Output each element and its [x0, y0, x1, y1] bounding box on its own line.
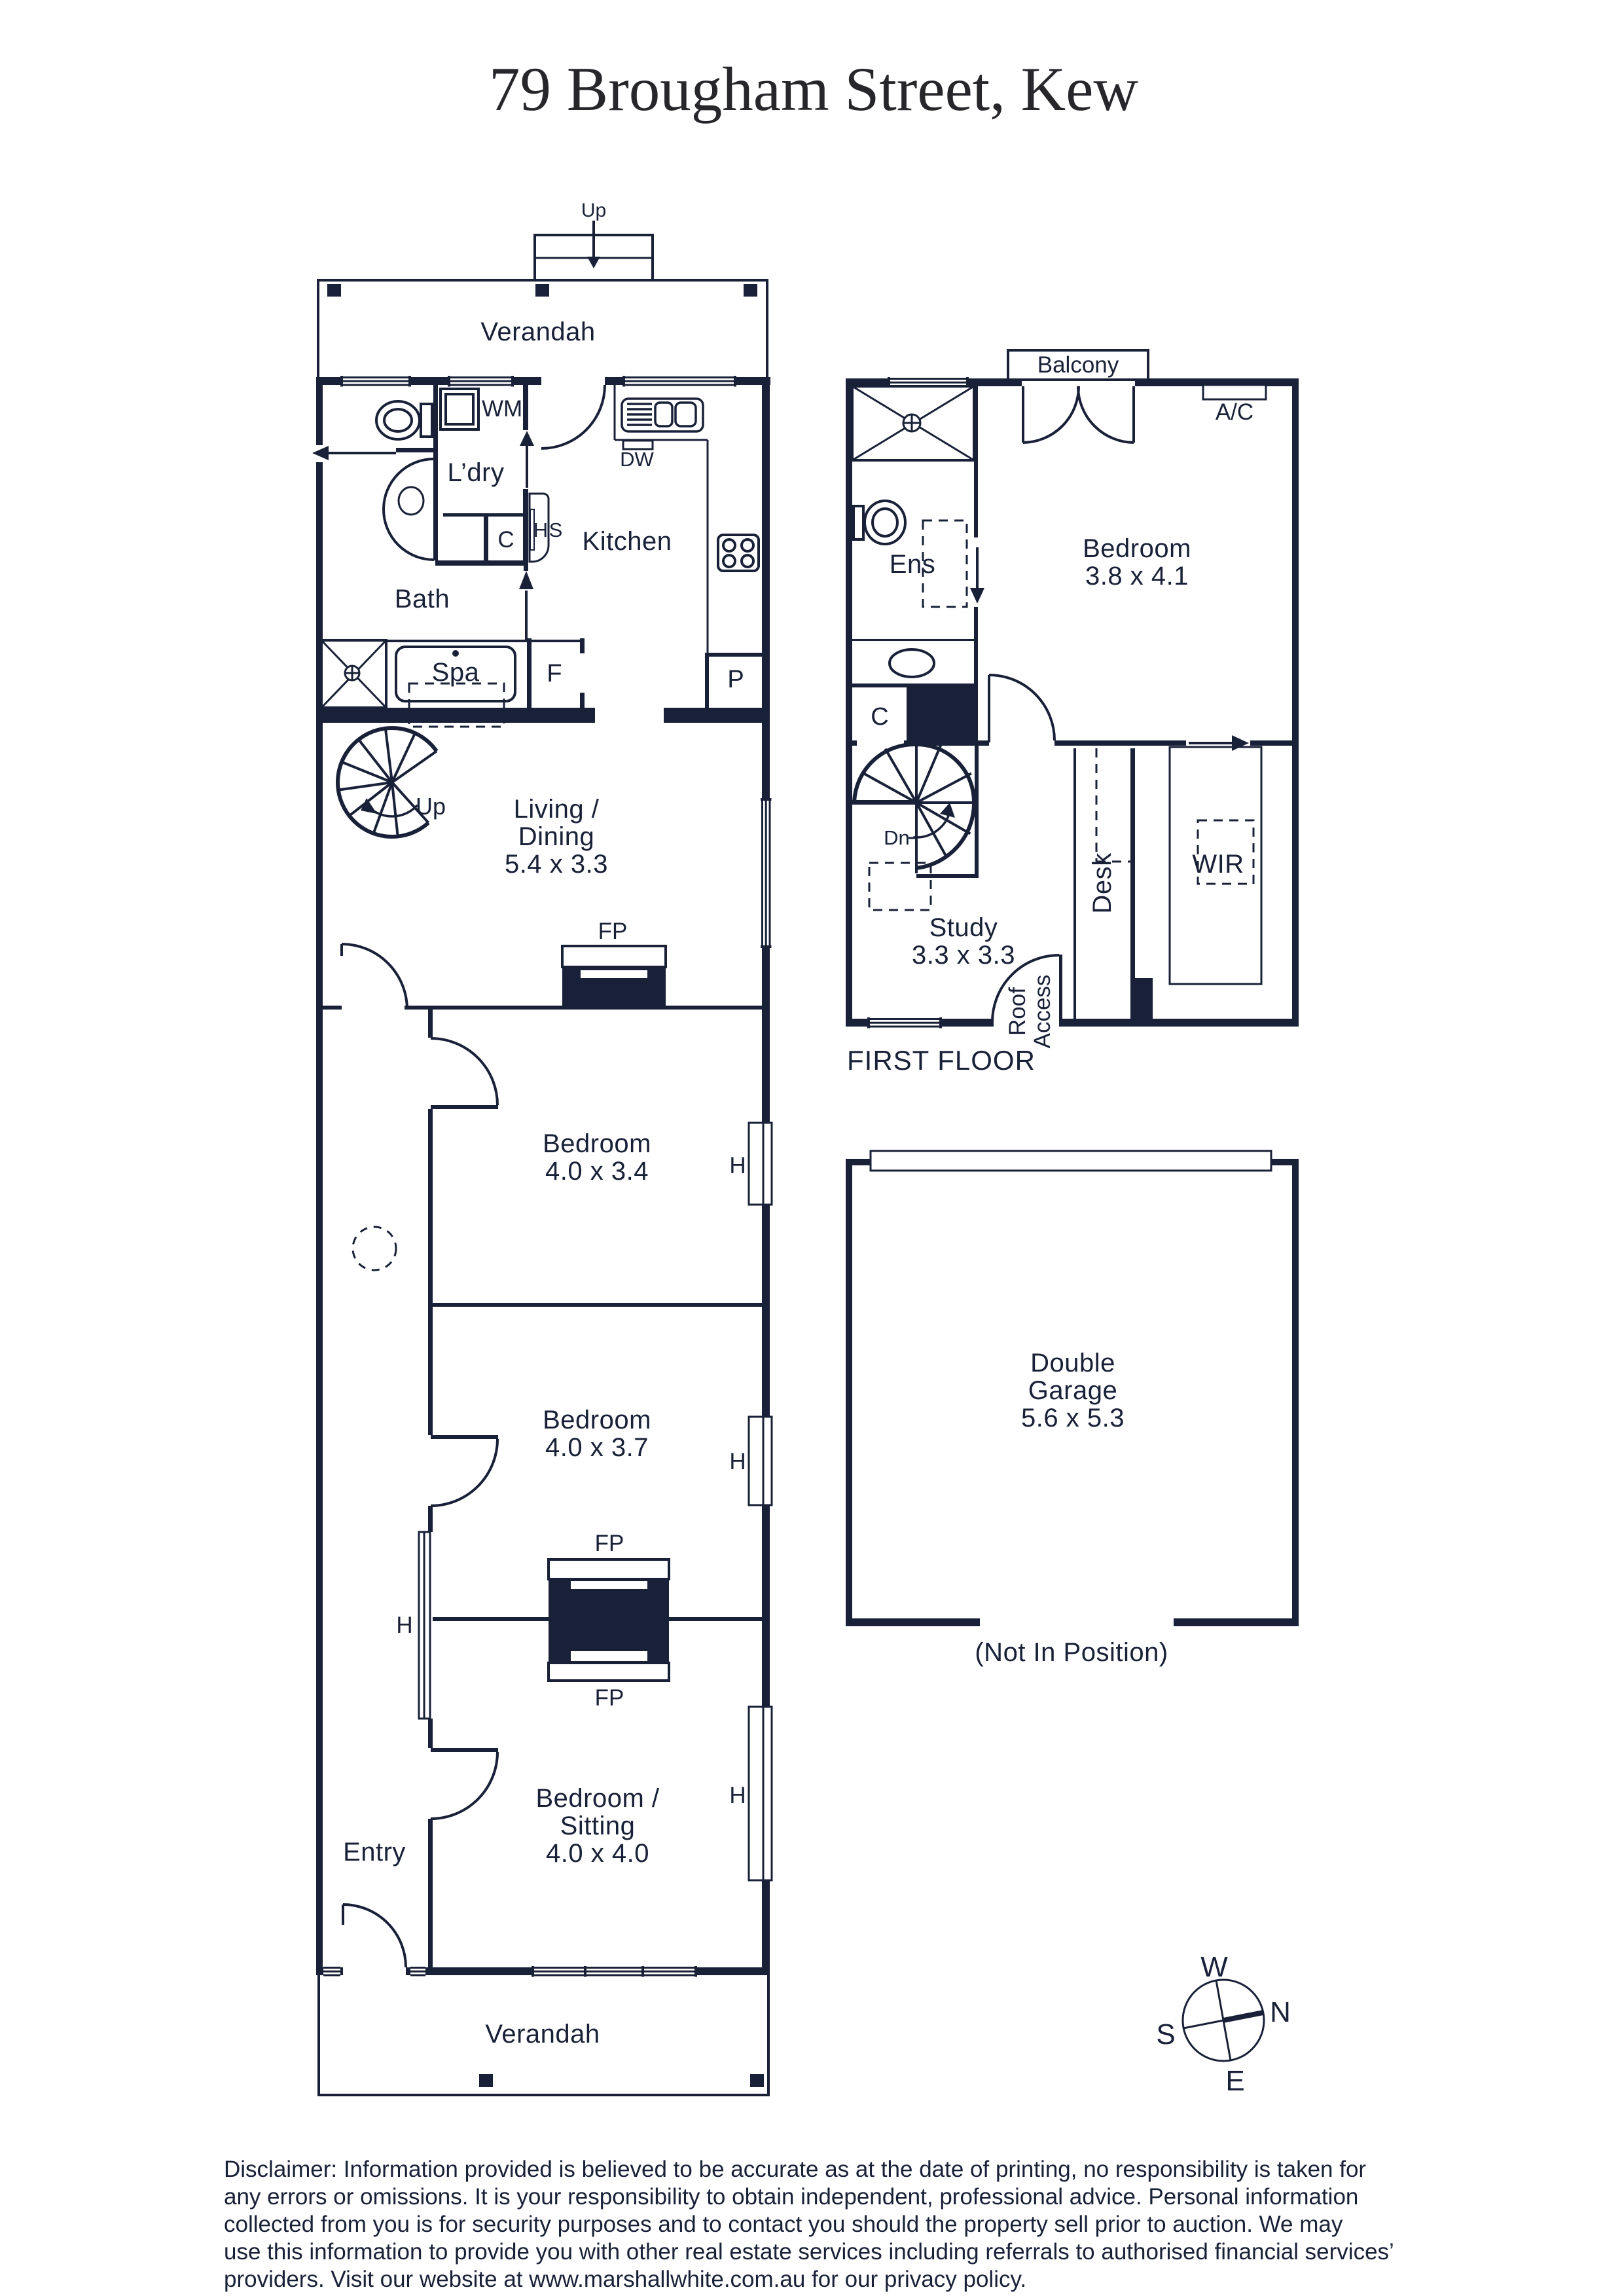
svg-text:H: H — [396, 1613, 412, 1638]
svg-text:A/C: A/C — [1216, 399, 1253, 425]
svg-text:FP: FP — [598, 919, 628, 944]
svg-text:C: C — [871, 703, 888, 731]
svg-text:Up: Up — [581, 200, 606, 221]
svg-text:Spa: Spa — [432, 658, 480, 687]
svg-text:FIRST FLOOR: FIRST FLOOR — [847, 1045, 1036, 1076]
svg-text:H: H — [729, 1153, 746, 1178]
svg-text:Verandah: Verandah — [480, 318, 595, 346]
svg-text:Dn: Dn — [884, 826, 910, 849]
svg-text:5.4 x 3.3: 5.4 x 3.3 — [505, 850, 608, 879]
svg-text:4.0 x 3.4: 4.0 x 3.4 — [545, 1157, 649, 1186]
svg-text:C: C — [497, 527, 514, 553]
svg-text:E: E — [1225, 2065, 1244, 2097]
svg-text:W: W — [1200, 1951, 1228, 1983]
svg-text:Verandah: Verandah — [485, 2020, 600, 2049]
svg-text:Kitchen: Kitchen — [583, 527, 672, 556]
svg-text:Bedroom: Bedroom — [543, 1129, 651, 1158]
svg-text:Disclaimer: Information provid: Disclaimer: Information provided is beli… — [224, 2157, 1366, 2182]
svg-text:N: N — [1270, 1996, 1291, 2028]
svg-text:Bedroom /: Bedroom / — [535, 1784, 659, 1813]
svg-text:Bedroom: Bedroom — [543, 1406, 651, 1434]
svg-text:collected from you is for secu: collected from you is for security purpo… — [224, 2212, 1343, 2237]
svg-text:DW: DW — [620, 448, 654, 471]
svg-text:F: F — [547, 660, 562, 687]
svg-text:Double: Double — [1030, 1349, 1115, 1377]
svg-text:(Not In Position): (Not In Position) — [975, 1638, 1168, 1667]
svg-text:Bedroom: Bedroom — [1083, 534, 1191, 563]
svg-text:H: H — [729, 1449, 746, 1474]
svg-text:Ens: Ens — [890, 550, 935, 579]
svg-text:79 Brougham Street, Kew: 79 Brougham Street, Kew — [489, 54, 1138, 124]
svg-text:Sitting: Sitting — [560, 1812, 636, 1840]
svg-text:Balcony: Balcony — [1037, 352, 1119, 378]
svg-text:providers. Visit our website a: providers. Visit our website at www.mars… — [224, 2267, 1026, 2292]
svg-text:use this information to provid: use this information to provide you with… — [224, 2239, 1394, 2265]
svg-text:Living /: Living / — [514, 795, 600, 824]
svg-text:Roof: Roof — [1005, 987, 1030, 1036]
svg-text:Bath: Bath — [395, 585, 450, 613]
svg-text:P: P — [727, 666, 744, 693]
svg-text:H: H — [533, 519, 548, 541]
svg-text:L’dry: L’dry — [448, 458, 505, 487]
svg-text:FP: FP — [595, 1685, 624, 1711]
svg-text:WM: WM — [482, 396, 522, 422]
svg-text:S: S — [549, 519, 563, 541]
svg-text:3.8 x 4.1: 3.8 x 4.1 — [1085, 562, 1189, 591]
svg-text:4.0 x 4.0: 4.0 x 4.0 — [546, 1839, 649, 1868]
svg-text:FP: FP — [595, 1531, 624, 1556]
svg-text:any errors or omissions. It is: any errors or omissions. It is your resp… — [224, 2184, 1358, 2210]
svg-text:Entry: Entry — [343, 1838, 406, 1867]
svg-text:Study: Study — [929, 913, 998, 942]
svg-text:Garage: Garage — [1028, 1376, 1117, 1405]
svg-text:S: S — [1156, 2018, 1175, 2050]
svg-text:WIR: WIR — [1192, 850, 1244, 879]
svg-text:Desk: Desk — [1088, 852, 1117, 914]
svg-text:Access: Access — [1030, 975, 1055, 1049]
svg-text:Dining: Dining — [518, 822, 594, 851]
svg-text:H: H — [729, 1783, 746, 1808]
svg-text:Up: Up — [416, 793, 446, 820]
svg-text:5.6 x 5.3: 5.6 x 5.3 — [1021, 1404, 1125, 1432]
svg-text:3.3 x 3.3: 3.3 x 3.3 — [912, 941, 1015, 970]
svg-text:4.0 x 3.7: 4.0 x 3.7 — [545, 1433, 649, 1462]
